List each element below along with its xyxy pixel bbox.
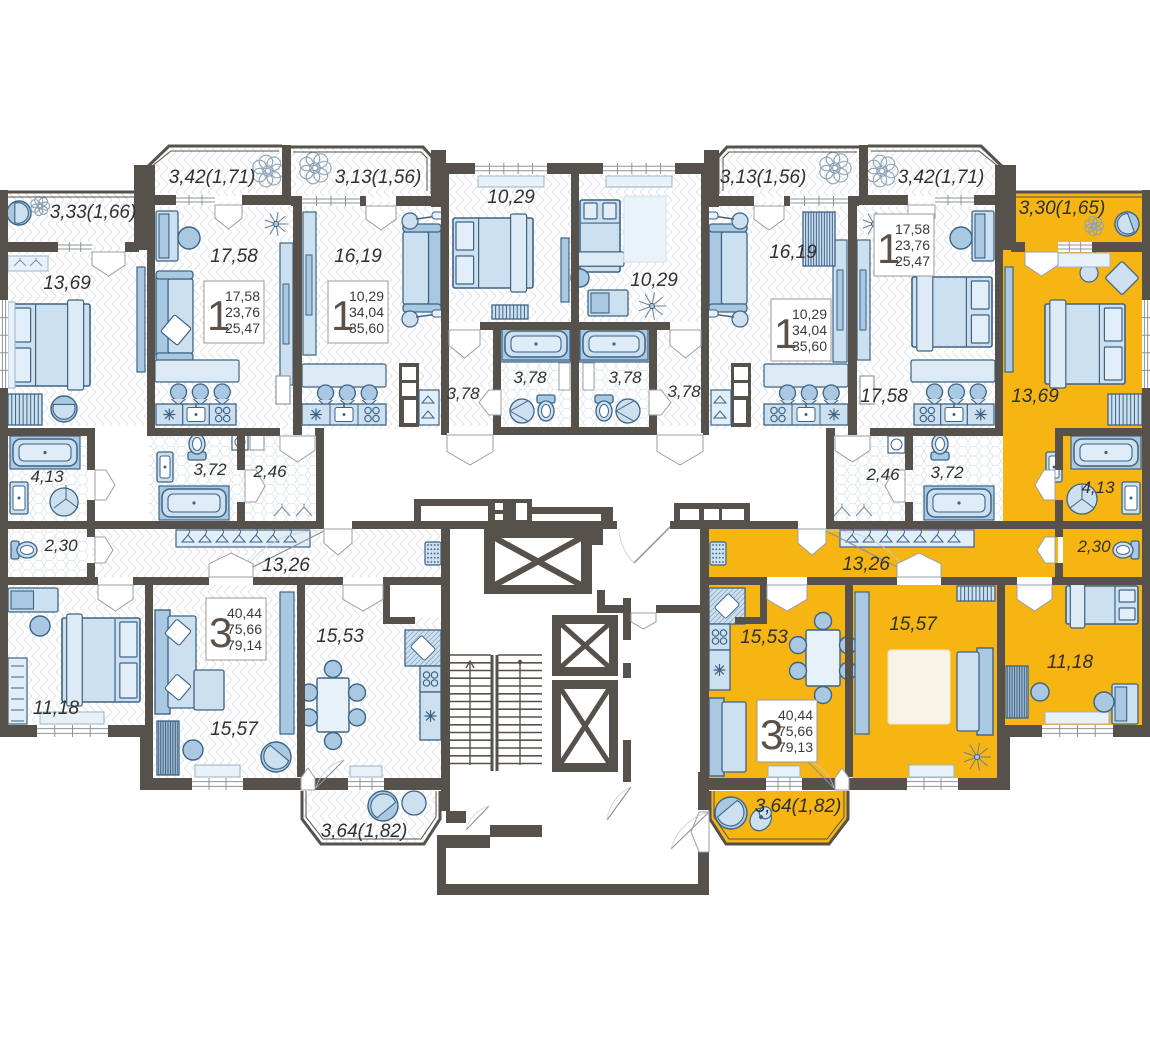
svg-text:15,57: 15,57 [889,614,938,635]
svg-text:3,42(1,71): 3,42(1,71) [898,167,985,188]
svg-text:10,29: 10,29 [630,270,678,291]
svg-text:13,69: 13,69 [43,273,91,294]
svg-text:25,47: 25,47 [225,320,260,336]
svg-text:4,13: 4,13 [1081,478,1115,497]
svg-text:16,19: 16,19 [334,246,382,267]
svg-text:11,18: 11,18 [33,698,80,719]
svg-text:2,30: 2,30 [1076,537,1111,556]
svg-text:75,66: 75,66 [227,621,262,637]
svg-text:40,44: 40,44 [778,707,813,723]
svg-text:3,33(1,66): 3,33(1,66) [50,202,137,223]
svg-text:3,78: 3,78 [446,384,480,403]
svg-text:13,26: 13,26 [842,554,890,575]
svg-text:3,78: 3,78 [608,368,642,387]
svg-text:3,72: 3,72 [930,463,964,482]
svg-text:3,30(1,65): 3,30(1,65) [1019,198,1106,219]
svg-text:2,46: 2,46 [252,462,287,481]
svg-text:3,72: 3,72 [193,460,227,479]
svg-text:15,53: 15,53 [740,627,788,648]
svg-text:4,13: 4,13 [30,467,64,486]
svg-text:2,46: 2,46 [865,465,900,484]
svg-text:3,13(1,56): 3,13(1,56) [720,167,807,188]
svg-text:16,19: 16,19 [769,242,817,263]
svg-text:10,29: 10,29 [349,288,384,304]
svg-text:10,29: 10,29 [792,306,827,322]
svg-text:34,04: 34,04 [349,304,384,320]
svg-text:23,76: 23,76 [225,304,260,320]
svg-text:17,58: 17,58 [895,221,930,237]
svg-text:34,04: 34,04 [792,322,827,338]
svg-text:13,69: 13,69 [1011,386,1059,407]
svg-text:3,78: 3,78 [667,382,701,401]
svg-text:3,78: 3,78 [513,368,547,387]
svg-text:17,58: 17,58 [210,246,258,267]
svg-text:3,64(1,82): 3,64(1,82) [755,796,842,817]
svg-text:3,64(1,82): 3,64(1,82) [321,821,408,842]
svg-text:15,53: 15,53 [316,626,364,647]
svg-text:25,47: 25,47 [895,253,930,269]
svg-text:79,13: 79,13 [778,739,813,755]
svg-text:2,30: 2,30 [43,536,78,555]
svg-text:17,58: 17,58 [225,288,260,304]
svg-text:15,57: 15,57 [210,719,259,740]
svg-text:35,60: 35,60 [792,338,827,354]
svg-text:11,18: 11,18 [1047,652,1094,673]
svg-text:35,60: 35,60 [349,320,384,336]
svg-text:79,14: 79,14 [227,637,262,653]
svg-text:3,42(1,71): 3,42(1,71) [169,167,256,188]
svg-text:23,76: 23,76 [895,237,930,253]
svg-text:13,26: 13,26 [262,555,310,576]
svg-text:75,66: 75,66 [778,723,813,739]
svg-text:40,44: 40,44 [227,605,262,621]
svg-text:3,13(1,56): 3,13(1,56) [335,167,422,188]
svg-text:10,29: 10,29 [487,187,535,208]
svg-text:17,58: 17,58 [860,386,908,407]
